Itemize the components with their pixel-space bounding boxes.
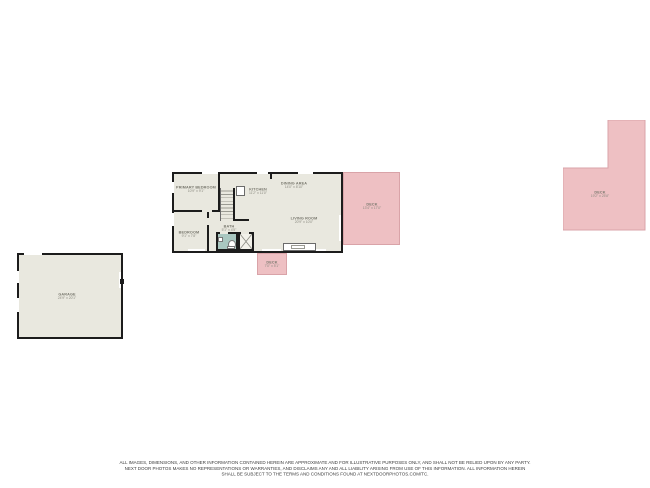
wall-segment: [270, 174, 272, 179]
window-gap: [202, 172, 218, 174]
wall-segment: [233, 219, 249, 221]
disclaimer-text: ALL IMAGES, DIMENSIONS, AND OTHER INFORM…: [119, 460, 530, 478]
room-label-primary-bedroom: PRIMARY BEDROOM10'9" x 9'1": [176, 185, 216, 193]
window-gap: [257, 172, 268, 174]
window-gap: [188, 249, 205, 251]
room-dimensions: 20'9" x 10'0": [291, 220, 318, 224]
window-gap: [172, 182, 174, 193]
room-dimensions: 9'1" x 7'8": [179, 234, 200, 238]
room-dimensions: 13'4" x 17'0": [363, 206, 381, 210]
window-gap: [17, 298, 19, 312]
door-gap: [241, 232, 249, 234]
room-label-garage: GARAGE24'9" x 20'1": [58, 292, 76, 300]
floorplan-canvas: PRIMARY BEDROOM10'9" x 9'1"KITCHEN11'2" …: [0, 0, 650, 488]
sliding-door-gap: [339, 215, 341, 241]
closet-shape: [238, 232, 254, 251]
counter-sink-icon: [291, 245, 305, 249]
staircase-icon: [220, 188, 233, 221]
wall-segment: [174, 210, 202, 212]
window-gap: [298, 172, 313, 174]
room-label-rear-deck: DECK19'2" x 25'8": [591, 190, 609, 198]
door-gap: [262, 249, 281, 251]
room-dimensions: 14'0" x 8'10": [281, 185, 307, 189]
wall-segment: [120, 279, 124, 284]
room-label-side-deck: DECK13'4" x 17'0": [363, 202, 381, 210]
sink-icon: [218, 237, 223, 242]
window-gap: [24, 253, 42, 255]
room-label-living-room: LIVING ROOM20'9" x 10'0": [291, 216, 318, 224]
room-dimensions: 24'9" x 20'1": [58, 296, 76, 300]
window-gap: [172, 213, 174, 226]
disclaimer-line-3: SHALL BE SUBJECT TO THE TERMS AND CONDIT…: [119, 472, 530, 478]
room-dimensions: 19'2" x 25'8": [591, 194, 609, 198]
wall-segment: [233, 188, 235, 221]
toilet-icon: [227, 246, 235, 249]
room-label-kitchen: KITCHEN11'2" x 11'0": [249, 187, 267, 195]
rear-deck-shape: [563, 120, 646, 231]
room-dimensions: 10'9" x 9'1": [176, 189, 216, 193]
door-gap: [220, 232, 228, 234]
wall-segment: [207, 212, 209, 218]
wall-segment: [212, 210, 220, 212]
room-label-bath: BATH5'1" x 4'5": [222, 224, 237, 232]
room-dimensions: 5'1" x 4'5": [222, 228, 237, 232]
appliance-icon: [236, 186, 245, 196]
room-label-porch-deck: DECK7'0" x 5'1": [265, 260, 280, 268]
room-label-dining-area: DINING AREA14'0" x 8'10": [281, 181, 307, 189]
wall-segment: [207, 225, 209, 251]
room-label-bedroom: BEDROOM9'1" x 7'8": [179, 230, 200, 238]
closet-cross-icon: [240, 234, 252, 249]
room-dimensions: 11'2" x 11'0": [249, 191, 267, 195]
disclaimer-line-1: ALL IMAGES, DIMENSIONS, AND OTHER INFORM…: [119, 460, 530, 466]
room-dimensions: 7'0" x 5'1": [265, 264, 280, 268]
window-gap: [17, 271, 19, 283]
